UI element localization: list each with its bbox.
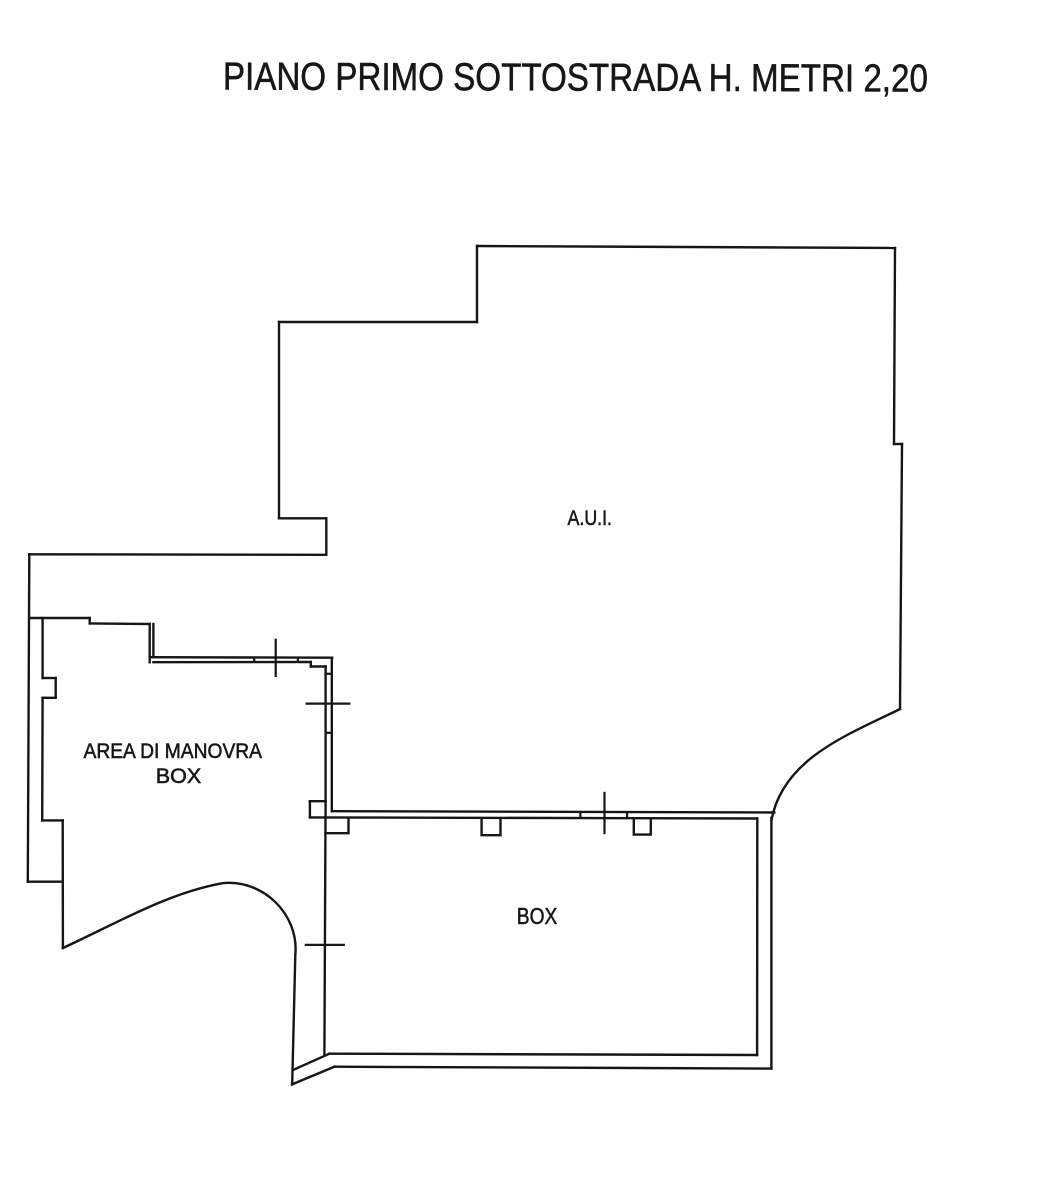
svg-text:BOX: BOX xyxy=(517,903,558,929)
svg-text:BOX: BOX xyxy=(156,764,201,788)
svg-text:AREA DI MANOVRA: AREA DI MANOVRA xyxy=(84,739,263,763)
svg-text:PIANO PRIMO SOTTOSTRADA H. MET: PIANO PRIMO SOTTOSTRADA H. METRI 2,20 xyxy=(223,56,928,101)
svg-text:A.U.I.: A.U.I. xyxy=(568,507,613,530)
